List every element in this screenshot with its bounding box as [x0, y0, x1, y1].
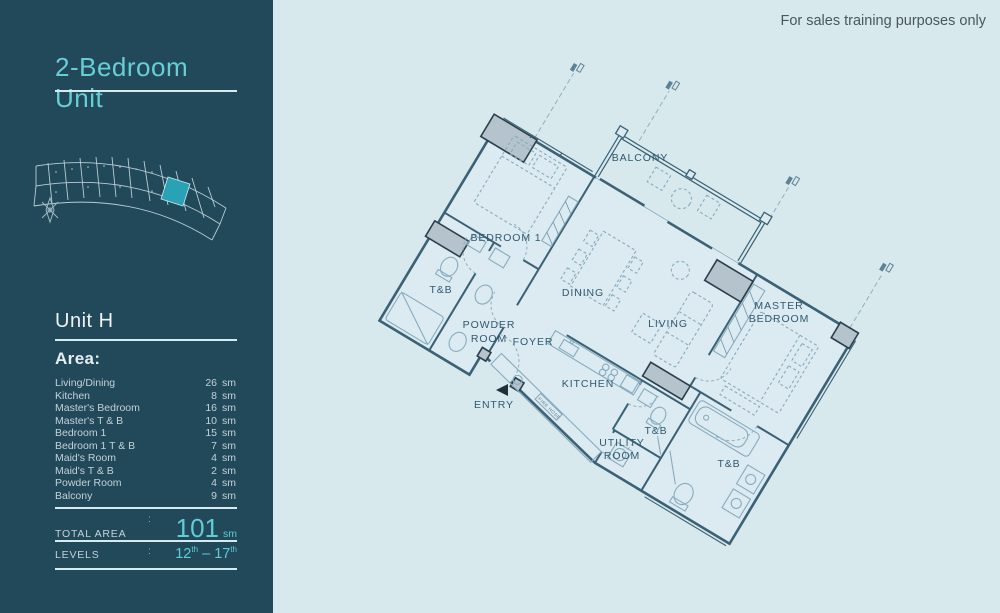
label-foyer: FOYER: [513, 336, 554, 348]
label-tb-master: T&B: [717, 458, 740, 470]
table-row: Balcony9sm: [55, 490, 237, 503]
table-row: Living/Dining26sm: [55, 377, 237, 390]
label-balcony: BALCONY: [612, 152, 668, 164]
title-underline: [55, 90, 237, 92]
entry-arrow-icon: [496, 384, 508, 396]
compass-icon: [42, 198, 58, 222]
table-row: Master's T & B10sm: [55, 415, 237, 428]
table-row: Kitchen8sm: [55, 390, 237, 403]
label-utility-line1: UTILITY: [599, 437, 644, 449]
table-row: Bedroom 115sm: [55, 427, 237, 440]
table-row: Bedroom 1 T & B7sm: [55, 440, 237, 453]
label-powder-line1: POWDER: [463, 319, 516, 331]
label-utility-line2: ROOM: [604, 450, 640, 462]
label-living: LIVING: [648, 318, 688, 330]
unit-outline: [374, 120, 856, 544]
label-master-line1: MASTER: [754, 300, 803, 312]
disclaimer-text: For sales training purposes only: [780, 13, 986, 29]
unit-name: Unit H: [55, 310, 237, 333]
divider: [55, 507, 237, 509]
table-row: Master's Bedroom16sm: [55, 402, 237, 415]
levels-value: 12th – 17th: [175, 545, 237, 562]
label-master-line2: BEDROOM: [749, 313, 810, 325]
area-heading: Area:: [55, 349, 100, 369]
page-title: 2-Bedroom Unit: [55, 52, 237, 114]
unit-name-underline: [55, 339, 237, 341]
label-tb-hall: T&B: [644, 425, 667, 437]
label-dining: DINING: [562, 287, 604, 299]
page: FIRE HOSE BALCONY BEDROOM 1 DINING LIVIN…: [0, 0, 1000, 613]
area-table: Living/Dining26sm Kitchen8sm Master's Be…: [55, 377, 237, 502]
label-tb-bedroom1: T&B: [429, 284, 452, 296]
building-keyplan: [28, 150, 240, 246]
keyplan-highlighted-unit: [161, 177, 190, 206]
table-row: Powder Room4sm: [55, 477, 237, 490]
label-kitchen: KITCHEN: [562, 378, 614, 390]
divider: [55, 540, 237, 542]
label-powder-line2: ROOM: [471, 333, 507, 345]
label-bedroom1: BEDROOM 1: [470, 232, 541, 244]
sidebar: 2-Bedroom Unit Unit H: [0, 0, 273, 613]
label-entry: ENTRY: [474, 399, 514, 411]
table-row: Maid's T & B2sm: [55, 465, 237, 478]
floorplan-rotated-geometry: FIRE HOSE: [365, 10, 922, 549]
divider: [55, 568, 237, 570]
levels-row: LEVELS : 12th – 17th: [55, 545, 237, 562]
table-row: Maid's Room4sm: [55, 452, 237, 465]
